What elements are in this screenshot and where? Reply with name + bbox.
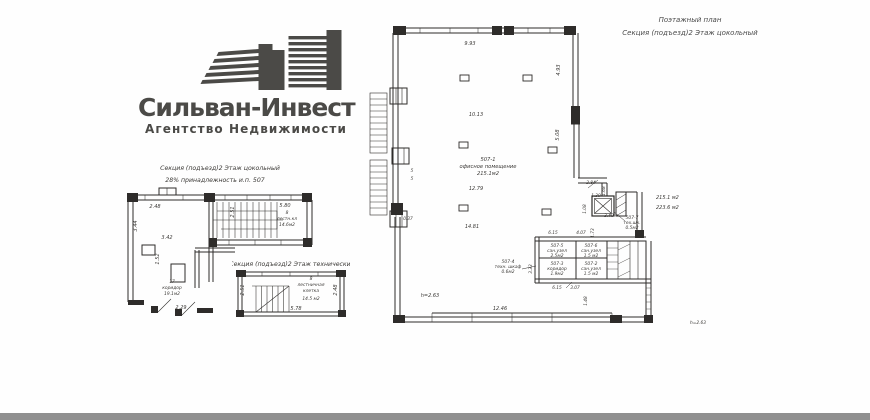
dim-3-44: 3.44 (133, 220, 139, 231)
external-stair-ladder (370, 93, 387, 215)
room-tech-stair-area: 14.5 м2 (302, 296, 319, 302)
dim-1-48: 1.48 (583, 296, 589, 306)
dim-12-79: 12.79 (469, 186, 483, 192)
logo-subtitle: Агентство Недвижимости (138, 122, 354, 136)
room-stair-area: 14.6м2 (279, 222, 295, 228)
room-tech-stair-name1: лестничная (297, 283, 325, 288)
room-stair-num: 8 (286, 210, 289, 216)
bottom-bar (0, 413, 870, 420)
technical-window-ticks (262, 272, 318, 276)
dim-2-84: 2.84 (586, 180, 596, 186)
dim-1-73: 1.73 (590, 228, 596, 238)
dim-2-51: 2.51 (230, 206, 236, 217)
dim-2-48-tech: 2.48 (333, 284, 339, 295)
dim-9-93: 9.93 (464, 41, 475, 47)
room-tech-stair-name2: клетка (303, 289, 319, 294)
main-window-ticks (420, 28, 612, 322)
main-wall-piers (391, 26, 653, 323)
plan-basement-header2: 28% принадлежность и.п. 507 (165, 177, 264, 184)
agency-logo: Сильван-Инвест Агентство Недвижимости (138, 30, 354, 136)
dim-10-13: 10.13 (469, 112, 483, 118)
height-note: h=2.63 (421, 293, 440, 299)
dim-6-15b: 6.15 (552, 285, 562, 291)
technical-stairs (252, 286, 289, 312)
dim-1-39: 1.39 (591, 193, 601, 199)
room-507-4-area: 0.6м2 (501, 269, 514, 275)
dim-4-93: 4.93 (556, 64, 562, 75)
dim-1-08: 1.08 (582, 204, 588, 214)
dim-2-51-tech: 2.51 (240, 284, 246, 295)
grid-label-5b: 5 (411, 176, 414, 182)
room-507-7-area: 0.5м2 (625, 225, 638, 231)
columns (459, 75, 557, 215)
dim-3-07: 3.07 (570, 285, 580, 291)
plan-basement-header1: Секция (подъезд)2 Этаж цокольный (160, 165, 280, 172)
dim-14-81: 14.81 (465, 224, 479, 230)
room-507-2-area: 1.5 м2 (584, 271, 599, 277)
room-507-6-area: 1.5 м2 (584, 253, 599, 259)
dim-5-08: 5.08 (555, 129, 561, 140)
duct-shafts (607, 241, 651, 309)
room-stair-name: лестн.кл (276, 217, 297, 222)
dim-4-07: 4.07 (576, 230, 586, 236)
dim-1-52: 1.52 (155, 253, 161, 264)
buildings-logo-icon (194, 30, 354, 94)
plan-technical-header: Секция (подъезд)2 Этаж технический (232, 261, 350, 268)
room-corridor-name: коридор (162, 286, 182, 291)
room-507-1-name: офисное помещение (460, 164, 517, 170)
dim-3-42: 3.42 (161, 235, 172, 241)
dim-0-37: 0.37 (403, 216, 413, 222)
dim-3-33: 3.33 (528, 264, 534, 274)
sheet-height-note: h=2.63 (690, 320, 706, 326)
room-tech-stair-num: 8 (310, 276, 313, 282)
room-507-3-area: 1.9м2 (550, 271, 563, 277)
note-area-1: 215.1 м2 (656, 195, 679, 201)
room-corridor-area: 19.1м2 (164, 291, 180, 297)
dim-5-80: 5.80 (279, 203, 290, 209)
room-507-1-area: 215.1м2 (477, 171, 499, 177)
logo-title: Сильван-Инвест (138, 95, 354, 121)
basement-stairs (213, 202, 283, 238)
dim-1-68: 1.68 (601, 186, 607, 196)
dim-2-48: 2.48 (149, 204, 160, 210)
room-507-5-area: 2.5м2 (550, 253, 563, 259)
dim-6-15a: 6.15 (548, 230, 558, 236)
dim-5-78: 5.78 (290, 306, 301, 312)
note-area-2: 223.6 м2 (656, 205, 679, 211)
drawing-sheet: Сильван-Инвест Агентство Недвижимости По… (0, 0, 870, 420)
dim-2-29: 2.29 (175, 305, 186, 311)
dim-3-40: 3.40 (604, 213, 614, 219)
plan-main: 9.93 4.93 10.13 5.08 507-1 офисное помещ… (360, 20, 710, 330)
plan-technical: Секция (подъезд)2 Этаж технический (232, 258, 350, 328)
grid-label-5a: 5 (411, 168, 414, 174)
main-walls (390, 28, 651, 322)
room-507-1-num: 507-1 (480, 157, 495, 163)
room-corridor-num: 17 (169, 279, 175, 285)
dim-12-46: 12.46 (493, 306, 507, 312)
